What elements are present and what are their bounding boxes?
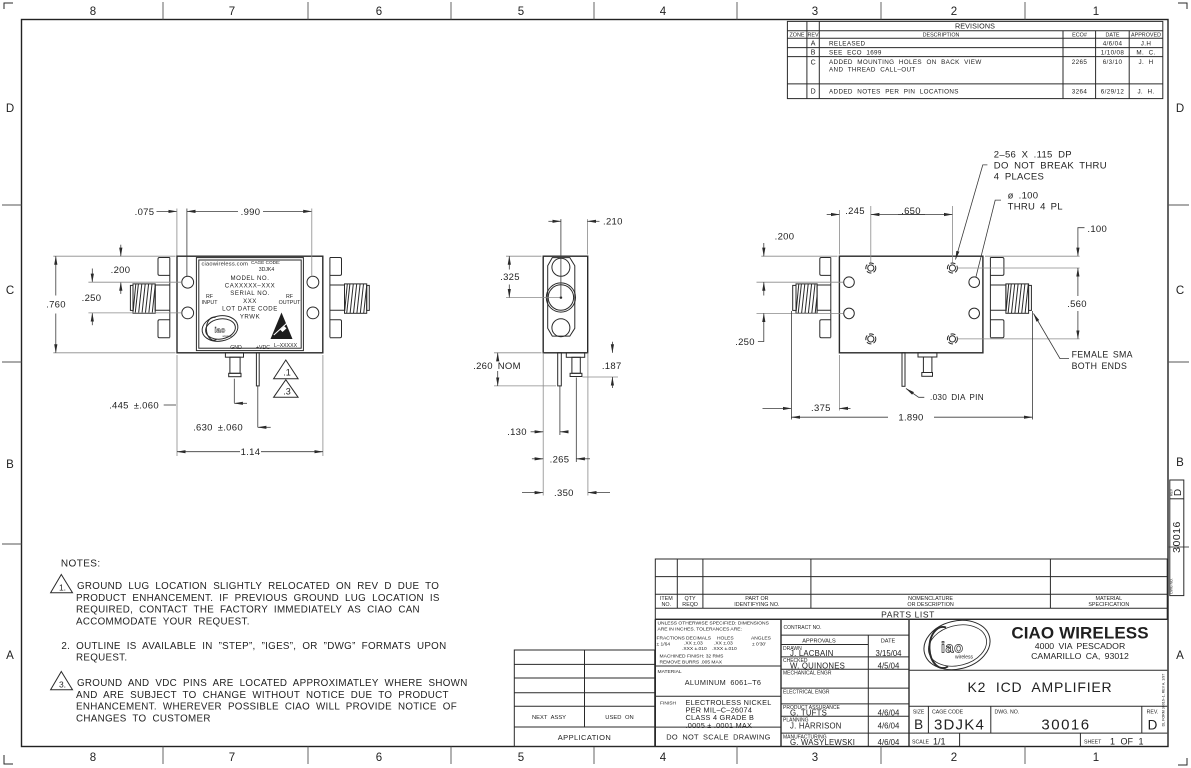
svg-text:D: D	[1173, 489, 1184, 496]
svg-text:APPROVALS: APPROVALS	[802, 638, 836, 644]
svg-text:NOTES:: NOTES:	[61, 559, 101, 570]
svg-text:± 0'30': ± 0'30'	[752, 642, 766, 648]
svg-text:B: B	[811, 50, 816, 57]
svg-text:DWG. NO.: DWG. NO.	[995, 710, 1020, 716]
svg-text:CONTRACT NO.: CONTRACT NO.	[784, 625, 822, 631]
svg-text:DATE: DATE	[1106, 33, 1120, 39]
svg-text:.375: .375	[811, 403, 831, 414]
svg-text:ARE IN INCHES. TOLERANCES ARE: ARE IN INCHES. TOLERANCES ARE:	[658, 627, 742, 633]
svg-text:A: A	[811, 40, 816, 47]
svg-text:.760: .760	[46, 300, 66, 311]
svg-text:FRACTIONS: FRACTIONS	[657, 636, 686, 642]
svg-text:SERIAL NO.: SERIAL NO.	[230, 290, 269, 297]
svg-text:7: 7	[229, 6, 235, 18]
svg-text:ENHANCEMENT. WHEREVER POSSIBLE: ENHANCEMENT. WHEREVER POSSIBLE CIAO WILL…	[76, 702, 457, 713]
svg-text:THRU 4 PL: THRU 4 PL	[1008, 202, 1063, 213]
svg-text:wireless: wireless	[955, 655, 974, 661]
svg-text:5: 5	[518, 752, 524, 764]
svg-text:iao: iao	[215, 326, 226, 335]
svg-text:wireless: wireless	[222, 334, 232, 338]
svg-text:.445 ±.060: .445 ±.060	[109, 400, 159, 411]
svg-text:+VDC: +VDC	[256, 345, 270, 351]
svg-text:.245: .245	[845, 206, 865, 217]
svg-text:D: D	[811, 89, 816, 96]
svg-text:DL FORM 30016–1, REV A, 1/97: DL FORM 30016–1, REV A, 1/97	[1162, 674, 1166, 727]
svg-text:8: 8	[90, 6, 96, 18]
svg-text:SIZE: SIZE	[913, 710, 925, 716]
svg-text:.630 ±.060: .630 ±.060	[193, 422, 243, 433]
svg-text:.200: .200	[111, 265, 131, 276]
svg-text:IDENTIFYING NO.: IDENTIFYING NO.	[734, 602, 779, 608]
svg-text:REQUEST.: REQUEST.	[76, 653, 127, 664]
svg-text:3/15/04: 3/15/04	[875, 649, 902, 658]
svg-text:30016: 30016	[1041, 717, 1090, 734]
svg-text:.250: .250	[735, 337, 755, 348]
svg-text:.200: .200	[775, 232, 795, 243]
svg-text:REVISIONS: REVISIONS	[955, 22, 995, 31]
svg-text:RELEASED: RELEASED	[829, 40, 865, 47]
svg-text:ALUMINUM 6061–T6: ALUMINUM 6061–T6	[685, 678, 762, 687]
svg-text:4/6/04: 4/6/04	[1103, 40, 1123, 47]
svg-text:1.14: 1.14	[241, 447, 261, 458]
svg-text:CAGE CODE: CAGE CODE	[932, 710, 964, 716]
svg-text:.030 DIA PIN: .030 DIA PIN	[930, 393, 984, 402]
svg-text:ciaowireless.com: ciaowireless.com	[202, 261, 249, 267]
svg-text:7: 7	[229, 752, 235, 764]
svg-text:.1: .1	[283, 368, 291, 378]
svg-text:CHANGES TO CUSTOMER: CHANGES TO CUSTOMER	[76, 713, 211, 724]
svg-text:1/10/08: 1/10/08	[1101, 50, 1125, 57]
svg-text:.325: .325	[500, 272, 520, 283]
svg-text:.100: .100	[1087, 224, 1107, 235]
svg-text:REV.: REV.	[1147, 710, 1159, 716]
svg-text:ADDED MOUNTING HOLES ON BACK V: ADDED MOUNTING HOLES ON BACK VIEW	[829, 59, 982, 66]
svg-text:2–56 X .115 DP: 2–56 X .115 DP	[994, 149, 1072, 160]
svg-text:LOT DATE CODE: LOT DATE CODE	[222, 306, 278, 313]
svg-text:.130: .130	[507, 427, 527, 438]
svg-text:4/6/04: 4/6/04	[878, 738, 900, 747]
svg-text:4: 4	[660, 752, 667, 764]
svg-text:L–XXXXX: L–XXXXX	[274, 343, 298, 349]
svg-text:GROUND LUG LOCATION SLIGHTLY R: GROUND LUG LOCATION SLIGHTLY RELOCATED O…	[77, 581, 439, 592]
svg-text:ELECTRICAL ENGR: ELECTRICAL ENGR	[783, 689, 830, 695]
svg-text:2: 2	[951, 752, 957, 764]
svg-text:2. OUTLINE IS AVAILABLE IN ”S: 2. OUTLINE IS AVAILABLE IN ”STEP”, ”IGES…	[61, 641, 446, 652]
svg-text:PRODUCT ENHANCEMENT. IF PREVIO: PRODUCT ENHANCEMENT. IF PREVIOUS GROUND …	[76, 593, 440, 604]
svg-text:1/1: 1/1	[933, 737, 946, 747]
svg-text:ADDED NOTES PER PIN LOCATIONS: ADDED NOTES PER PIN LOCATIONS	[829, 89, 959, 96]
svg-text:INPUT: INPUT	[202, 300, 219, 306]
svg-text:REMOVE BURRS .005 MAX: REMOVE BURRS .005 MAX	[660, 660, 723, 666]
svg-text:ACCOMMODATE YOUR REQUEST.: ACCOMMODATE YOUR REQUEST.	[76, 616, 250, 627]
svg-text:DWG NO.: DWG NO.	[1170, 578, 1174, 593]
svg-text:3: 3	[812, 752, 818, 764]
svg-text:SHEET: SHEET	[1084, 740, 1102, 746]
svg-text:J. H.: J. H.	[1137, 89, 1154, 96]
svg-text:CAGE CODE:: CAGE CODE:	[251, 260, 280, 265]
svg-text:2265: 2265	[1072, 59, 1088, 66]
svg-text:ø .100: ø .100	[1008, 190, 1039, 201]
svg-text:NO.: NO.	[662, 602, 672, 608]
svg-text:A: A	[6, 650, 14, 662]
svg-text:PARTS LIST: PARTS LIST	[881, 609, 935, 619]
svg-text:A: A	[1176, 650, 1184, 662]
svg-text:3DJK4: 3DJK4	[934, 717, 985, 734]
svg-text:2: 2	[951, 6, 957, 18]
svg-text:XXX: XXX	[243, 298, 257, 305]
svg-text:GND: GND	[230, 345, 242, 351]
svg-text:ECO#: ECO#	[1072, 33, 1087, 39]
svg-text:4/6/04: 4/6/04	[878, 722, 900, 731]
svg-text:D: D	[1176, 103, 1184, 115]
svg-text:J.H: J.H	[1141, 40, 1152, 47]
svg-text:1: 1	[1093, 6, 1099, 18]
svg-text:D: D	[1148, 718, 1158, 733]
svg-text:1 OF 1: 1 OF 1	[1110, 737, 1144, 747]
svg-text:8: 8	[90, 752, 96, 764]
svg-text:DESCRIPTION: DESCRIPTION	[923, 33, 960, 39]
svg-text:B: B	[1176, 457, 1184, 469]
svg-text:AND ARE SUBJECT TO CHANGE WITH: AND ARE SUBJECT TO CHANGE WITHOUT NOTICE…	[76, 690, 449, 701]
svg-text:SPECIFICATION: SPECIFICATION	[1088, 602, 1129, 608]
svg-text:MATERIAL: MATERIAL	[658, 669, 682, 675]
svg-text:B: B	[914, 717, 923, 732]
svg-text:.560: .560	[1067, 299, 1087, 310]
svg-text:4000 VIA PESCADOR: 4000 VIA PESCADOR	[1035, 641, 1125, 651]
svg-text:C: C	[811, 60, 816, 67]
svg-text:FINISH: FINISH	[660, 701, 676, 707]
svg-text:30016: 30016	[1171, 521, 1183, 553]
svg-text:4: 4	[660, 6, 667, 18]
svg-text:CAXXXXX–XXX: CAXXXXX–XXX	[225, 283, 275, 290]
svg-text:3: 3	[812, 6, 818, 18]
svg-text:ANGLES: ANGLES	[751, 636, 772, 642]
svg-text:REQUIRED, CONTACT THE FACTORY: REQUIRED, CONTACT THE FACTORY IMMEDIATEL…	[76, 605, 420, 616]
svg-text:4/5/04: 4/5/04	[878, 661, 900, 670]
svg-text:REV: REV	[1170, 488, 1174, 496]
svg-text:± 1/64: ± 1/64	[657, 642, 671, 648]
svg-text:.187: .187	[602, 361, 622, 372]
svg-text:CAMARILLO CA, 93012: CAMARILLO CA, 93012	[1031, 651, 1129, 661]
svg-text:ZONE: ZONE	[790, 33, 805, 39]
svg-text:C: C	[6, 285, 14, 297]
svg-text:6: 6	[376, 6, 382, 18]
svg-text:4/6/04: 4/6/04	[878, 708, 900, 717]
svg-text:3264: 3264	[1072, 89, 1088, 96]
svg-text:MACHINED FINISH: 32 RMS: MACHINED FINISH: 32 RMS	[660, 654, 725, 660]
svg-text:D: D	[6, 103, 14, 115]
svg-text:4 PLACES: 4 PLACES	[994, 172, 1044, 183]
svg-text:6/29/12: 6/29/12	[1101, 89, 1125, 96]
svg-text:MODEL NO.: MODEL NO.	[231, 275, 270, 282]
svg-text:3.: 3.	[59, 679, 66, 689]
svg-text:APPLICATION: APPLICATION	[558, 733, 611, 742]
svg-text:.0005 ± .0001 MAX: .0005 ± .0001 MAX	[686, 721, 753, 730]
svg-text:W. QUINONES: W. QUINONES	[790, 661, 845, 670]
svg-text:6/3/10: 6/3/10	[1103, 59, 1123, 66]
svg-text:APPROVED: APPROVED	[1131, 33, 1161, 39]
svg-text:SEE ECO 1699: SEE ECO 1699	[829, 50, 882, 57]
svg-text:.990: .990	[241, 207, 261, 218]
svg-text:CIAO WIRELESS: CIAO WIRELESS	[1011, 623, 1148, 642]
svg-text:SCALE: SCALE	[912, 740, 930, 746]
svg-text:REQD: REQD	[682, 602, 698, 608]
svg-text:1.: 1.	[59, 582, 66, 592]
svg-text:J. H: J. H	[1139, 59, 1154, 66]
svg-text:.210: .210	[603, 217, 623, 228]
svg-text:.3: .3	[283, 387, 291, 397]
svg-text:C: C	[1176, 285, 1184, 297]
svg-text:.265: .265	[550, 454, 570, 465]
svg-text:.075: .075	[135, 207, 155, 218]
svg-text:K2 ICD AMPLIFIER: K2 ICD AMPLIFIER	[968, 679, 1113, 695]
svg-text:UNLESS OTHERWISE SPECIFIED: DI: UNLESS OTHERWISE SPECIFIED: DIMENSIONS	[658, 621, 770, 627]
svg-text:BOTH ENDS: BOTH ENDS	[1072, 361, 1128, 371]
svg-text:AND THREAD CALL–OUT: AND THREAD CALL–OUT	[829, 66, 916, 73]
svg-text:5: 5	[518, 6, 524, 18]
svg-text:OUTPUT: OUTPUT	[279, 300, 302, 306]
svg-text:YRWK: YRWK	[240, 313, 260, 320]
svg-text:.XX ±.03: .XX ±.03	[714, 641, 733, 647]
svg-text:.250: .250	[82, 293, 102, 304]
svg-text:DO NOT SCALE DRAWING: DO NOT SCALE DRAWING	[666, 732, 770, 741]
svg-text:1: 1	[1093, 752, 1099, 764]
svg-text:DATE: DATE	[881, 638, 896, 644]
svg-text:OR DESCRIPTION: OR DESCRIPTION	[907, 602, 954, 608]
svg-text:1.890: 1.890	[898, 413, 923, 424]
svg-text:REV: REV	[807, 33, 818, 39]
svg-text:.350: .350	[554, 488, 574, 499]
svg-text:.XXX ±.010: .XXX ±.010	[712, 646, 737, 652]
svg-text:.260 NOM: .260 NOM	[473, 361, 521, 372]
svg-text:6: 6	[376, 752, 382, 764]
svg-text:G. WASYLEWSKI: G. WASYLEWSKI	[790, 738, 855, 747]
svg-text:MECHANICAL ENGR: MECHANICAL ENGR	[783, 671, 832, 677]
svg-text:NEXT ASSY: NEXT ASSY	[532, 715, 566, 721]
svg-text:GROUND AND VDC PINS ARE LOCATE: GROUND AND VDC PINS ARE LOCATED APPROXIM…	[77, 678, 468, 689]
svg-text:USED ON: USED ON	[605, 715, 633, 721]
svg-text:J. HARRISON: J. HARRISON	[790, 722, 842, 731]
svg-text:M. C.: M. C.	[1136, 50, 1155, 57]
svg-text:3DJK4: 3DJK4	[259, 267, 275, 273]
svg-text:FEMALE SMA: FEMALE SMA	[1072, 349, 1133, 359]
svg-text:.XX ±.03: .XX ±.03	[684, 641, 703, 647]
svg-text:G. TUFTS: G. TUFTS	[790, 708, 827, 717]
svg-text:DO NOT BREAK THRU: DO NOT BREAK THRU	[994, 161, 1107, 172]
svg-text:J. LACBAIN: J. LACBAIN	[790, 649, 834, 658]
svg-text:B: B	[6, 459, 14, 471]
svg-text:.650: .650	[901, 206, 921, 217]
svg-text:.XXX ±.010: .XXX ±.010	[682, 646, 707, 652]
